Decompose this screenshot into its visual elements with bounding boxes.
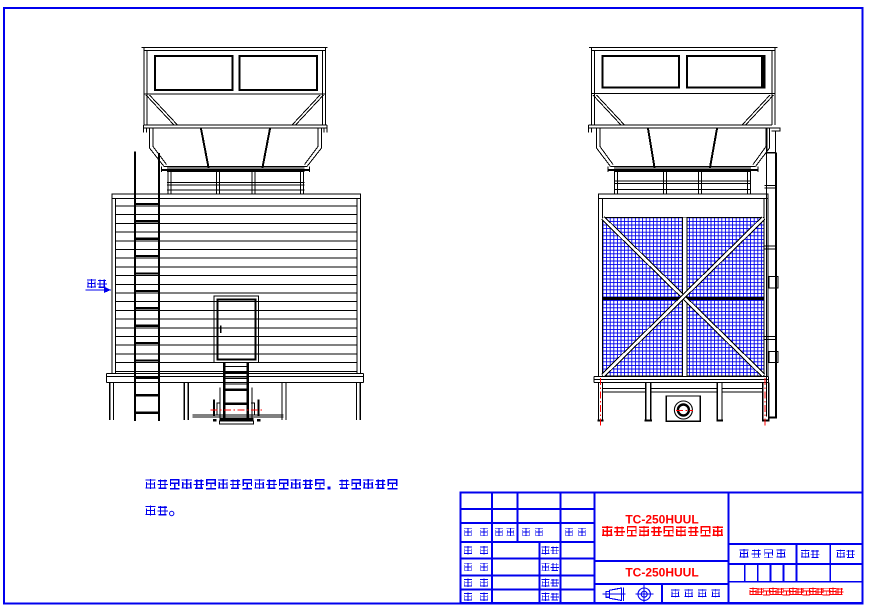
svg-text:TC-250HUUL: TC-250HUUL bbox=[625, 566, 698, 580]
svg-text:TC-250HUUL: TC-250HUUL bbox=[625, 513, 698, 527]
